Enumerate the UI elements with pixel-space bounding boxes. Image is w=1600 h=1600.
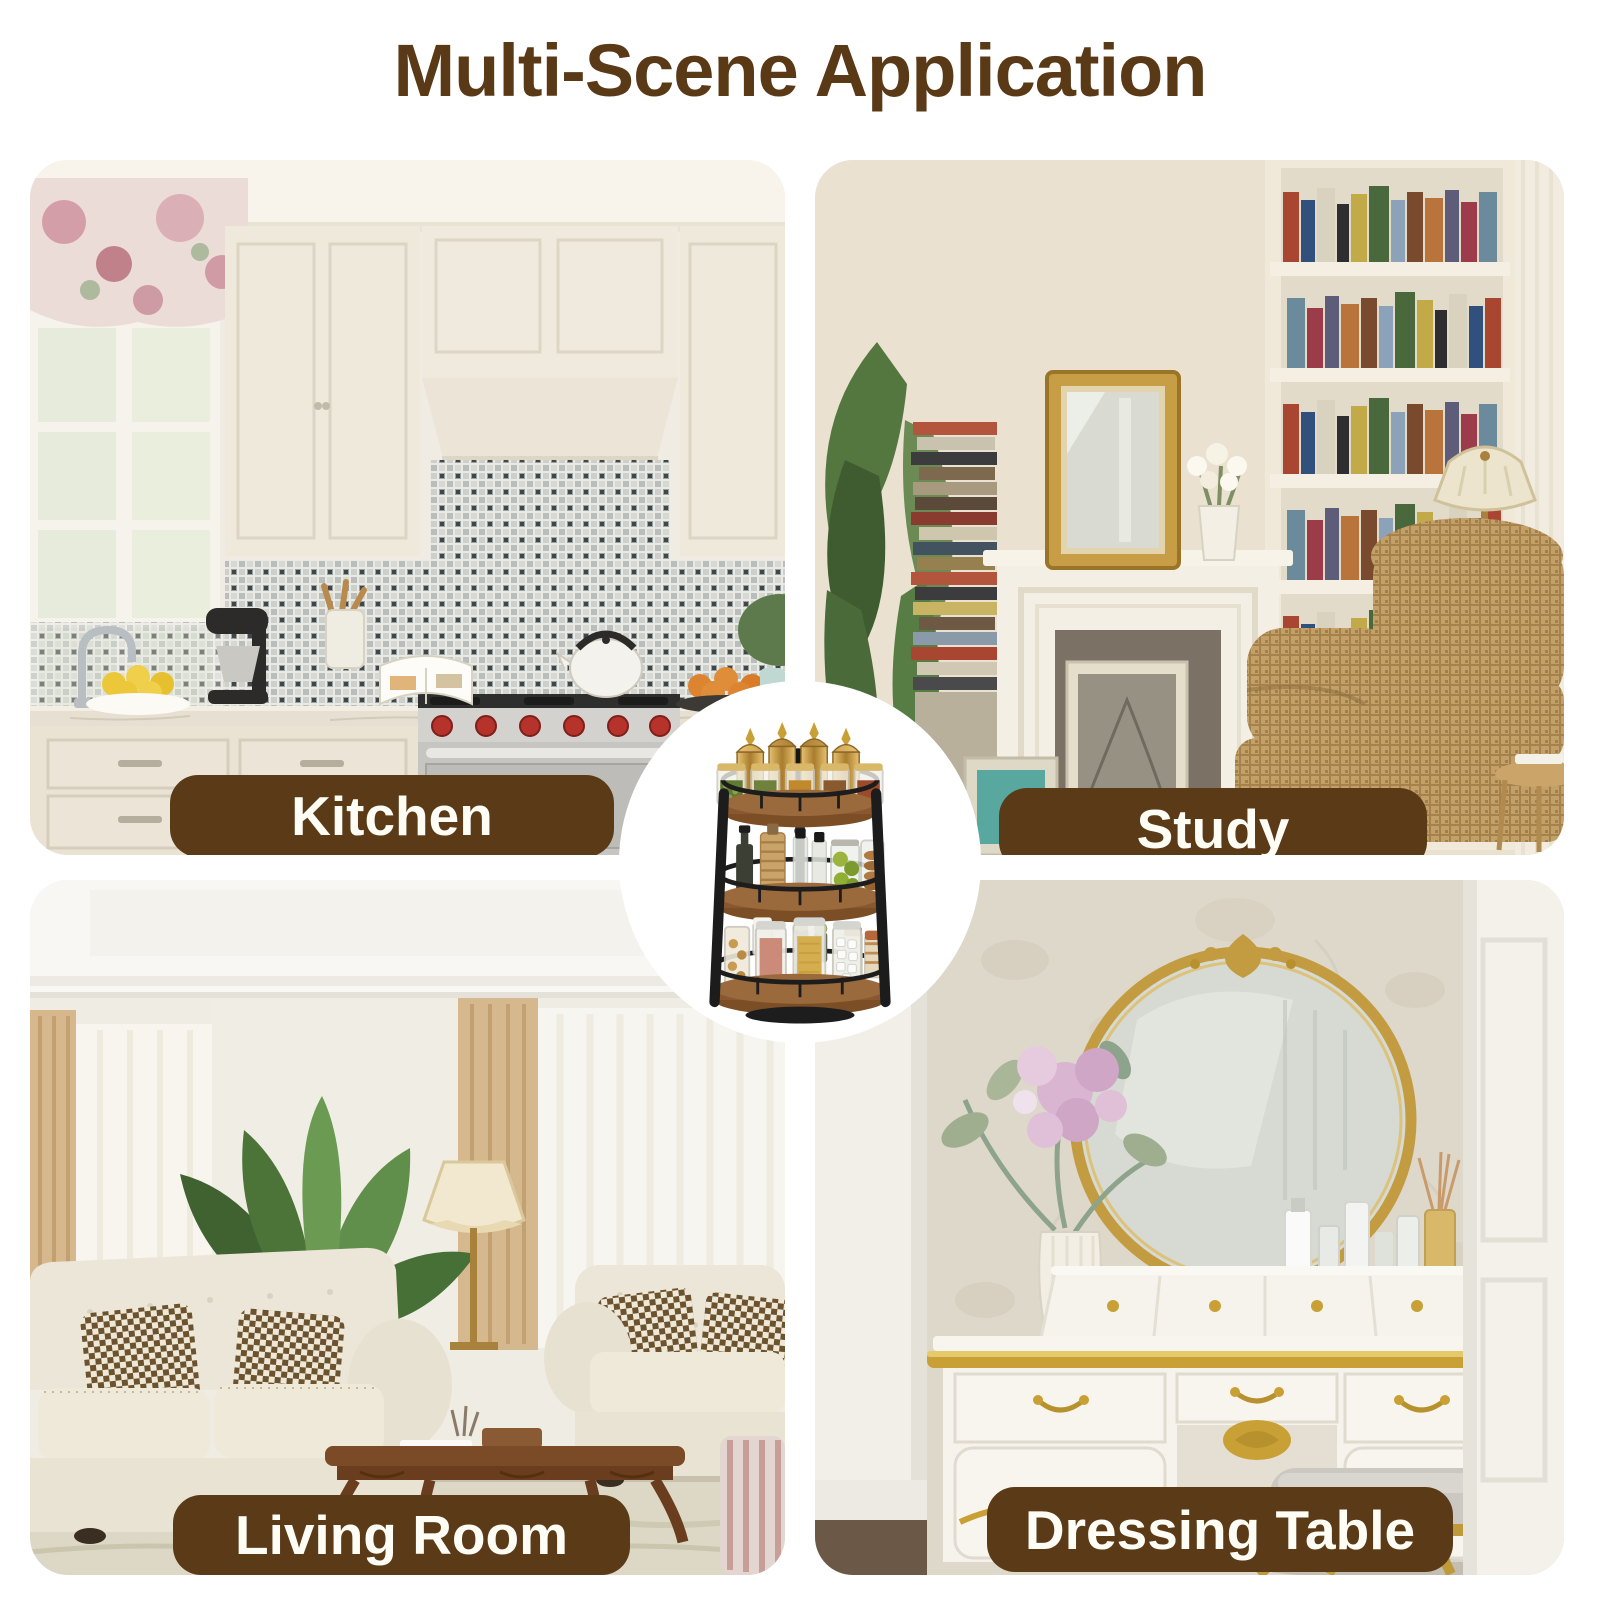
study-label-text: Study bbox=[1137, 797, 1290, 855]
product-infographic: Multi-Scene Application bbox=[0, 0, 1600, 1600]
spice-rack-product-image bbox=[630, 684, 970, 1040]
product-circle bbox=[619, 681, 981, 1043]
kitchen-range-hood bbox=[422, 226, 678, 468]
dressing-table-label: Dressing Table bbox=[987, 1487, 1453, 1572]
dressing-table-label-text: Dressing Table bbox=[1025, 1498, 1415, 1562]
kitchen-cookbook bbox=[380, 656, 472, 704]
rack-bottom-tier bbox=[715, 917, 886, 1015]
rack-middle-tier bbox=[719, 823, 883, 922]
living-striped-armchair-corner bbox=[720, 1436, 785, 1575]
rack-rotating-base bbox=[746, 1007, 855, 1024]
living-room-label: Living Room bbox=[173, 1495, 630, 1575]
kitchen-label: Kitchen bbox=[170, 775, 614, 855]
study-gold-mirror bbox=[1047, 372, 1179, 568]
study-label: Study bbox=[999, 788, 1427, 855]
kitchen-floral-valance bbox=[30, 178, 248, 327]
living-room-label-text: Living Room bbox=[235, 1503, 568, 1567]
rack-top-tier bbox=[717, 722, 882, 827]
page-title: Multi-Scene Application bbox=[0, 28, 1600, 113]
kitchen-label-text: Kitchen bbox=[291, 784, 493, 848]
